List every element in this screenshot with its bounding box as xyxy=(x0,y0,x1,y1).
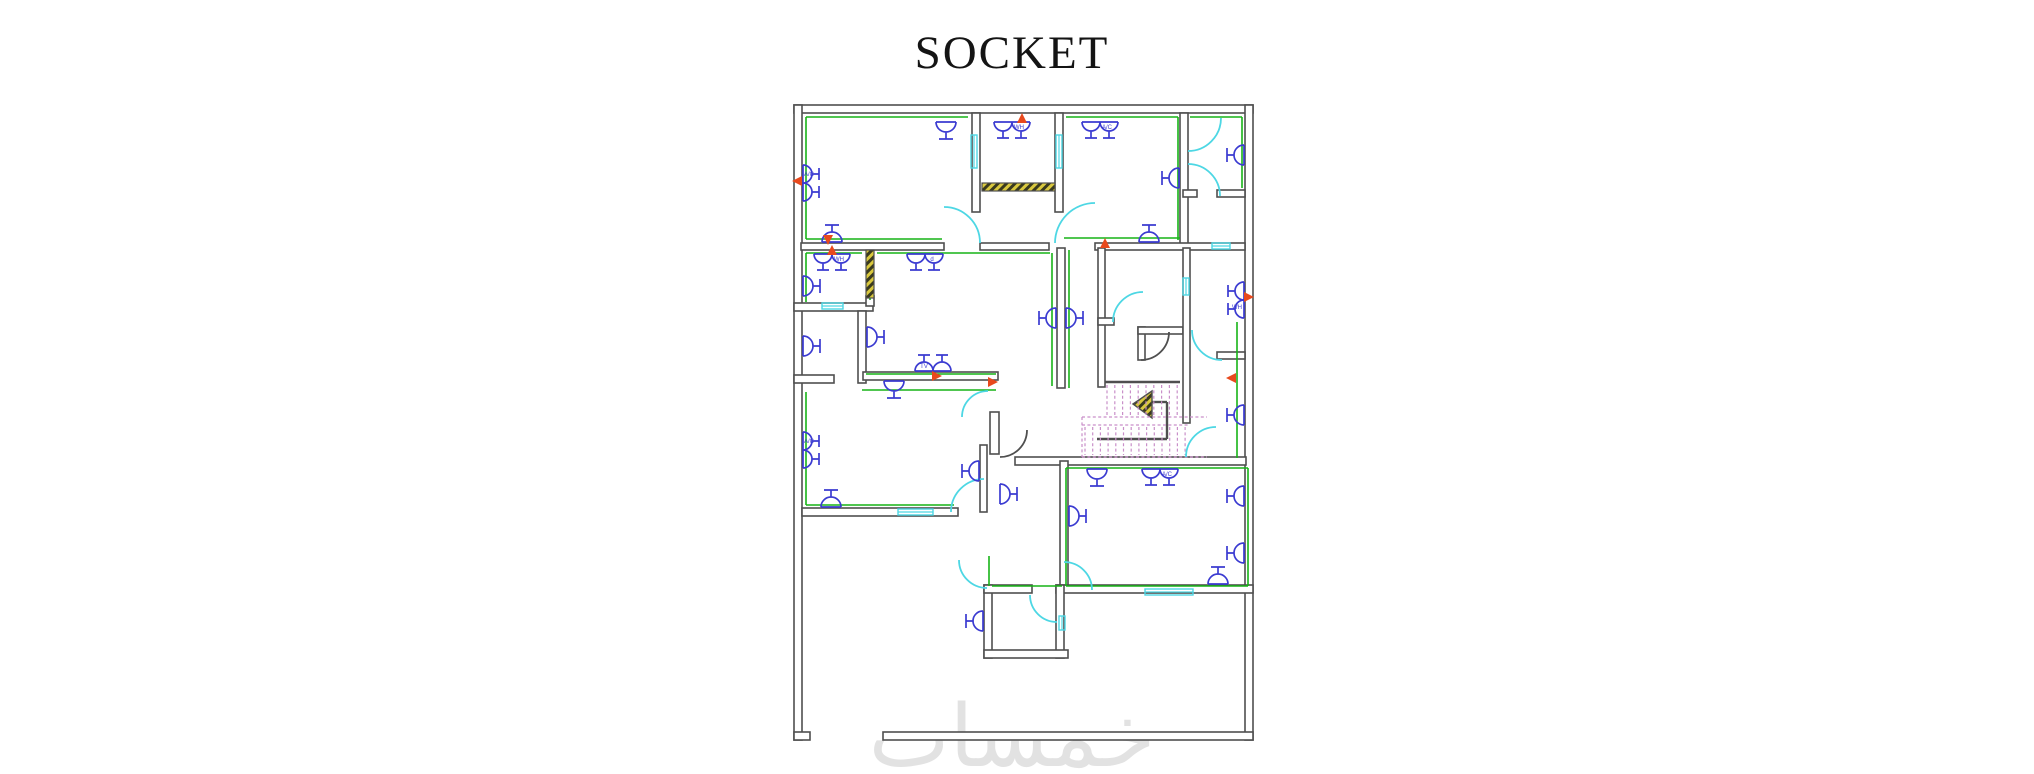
socket-symbol xyxy=(1087,469,1107,486)
socket-glyph xyxy=(1139,225,1159,242)
wall xyxy=(1217,190,1245,197)
floorplan-svg: A/CWHA/CWHdTVA/CA/CWH xyxy=(0,0,2034,774)
wall xyxy=(984,650,1068,658)
socket-symbol xyxy=(966,611,983,631)
wall xyxy=(1015,457,1246,465)
socket-glyph xyxy=(1227,543,1244,563)
wall xyxy=(1180,113,1188,247)
stair-direction-arrow xyxy=(1133,391,1152,418)
wall xyxy=(972,113,980,212)
door-arc xyxy=(1113,292,1143,322)
socket-symbol xyxy=(867,327,884,347)
socket-symbol xyxy=(1227,486,1244,506)
socket-symbol xyxy=(936,122,956,139)
wall xyxy=(1060,461,1068,592)
wall xyxy=(794,105,802,740)
socket-symbol xyxy=(1039,308,1056,328)
socket-label: TV xyxy=(920,364,928,370)
wall xyxy=(801,243,944,250)
wall xyxy=(802,508,958,516)
socket-glyph xyxy=(1162,168,1179,188)
door-arc xyxy=(951,479,984,512)
socket-symbol xyxy=(1227,405,1244,425)
floorplan-canvas: خمسات A/CWHA/CWHdTVA/CA/CWH SOCKET xyxy=(0,0,2034,774)
socket-symbol xyxy=(1142,469,1178,485)
wall xyxy=(990,412,999,454)
socket-symbol xyxy=(1208,567,1228,584)
wall xyxy=(1138,327,1183,334)
hatch-bar xyxy=(982,183,1055,191)
wall xyxy=(980,243,1049,250)
socket-glyph xyxy=(936,122,956,139)
wall xyxy=(1183,248,1190,423)
wall xyxy=(1098,318,1114,325)
socket-symbol xyxy=(1228,282,1244,318)
socket-glyph xyxy=(803,336,820,356)
socket-glyph xyxy=(1069,506,1086,526)
socket-glyph xyxy=(1000,484,1017,504)
socket-glyph xyxy=(966,611,983,631)
socket-symbol xyxy=(1082,122,1118,138)
socket-glyph xyxy=(1087,469,1107,486)
socket-symbol xyxy=(907,254,943,270)
hatch-bar xyxy=(866,250,874,298)
socket-glyph xyxy=(1228,282,1244,318)
socket-symbol xyxy=(1162,168,1179,188)
door-arc xyxy=(1030,595,1057,622)
socket-glyph xyxy=(1142,469,1178,485)
wall xyxy=(1217,352,1245,359)
socket-glyph xyxy=(867,327,884,347)
door-arc xyxy=(1188,118,1221,151)
socket-glyph xyxy=(907,254,943,270)
socket-label: WH xyxy=(1232,305,1242,311)
socket-label: WH xyxy=(834,257,844,263)
socket-glyph xyxy=(962,461,979,481)
walls-layer xyxy=(794,105,1253,740)
socket-symbol xyxy=(814,254,850,270)
socket-symbol xyxy=(803,336,820,356)
door-arc xyxy=(962,391,988,417)
socket-glyph xyxy=(814,254,850,270)
wall xyxy=(1056,585,1064,658)
wall xyxy=(1183,190,1197,197)
socket-glyph xyxy=(1039,308,1056,328)
socket-symbol xyxy=(1000,484,1017,504)
socket-label: A/C xyxy=(804,172,815,178)
wall xyxy=(794,732,810,740)
wall xyxy=(794,105,1253,113)
circuit-marker xyxy=(1226,373,1236,383)
socket-glyph xyxy=(1208,567,1228,584)
door-arc xyxy=(959,560,987,588)
wall xyxy=(1057,248,1065,388)
wall xyxy=(1245,105,1253,740)
socket-symbol xyxy=(994,122,1030,138)
circuit-marker xyxy=(1017,113,1027,123)
socket-label: WH xyxy=(1014,125,1024,131)
wall xyxy=(984,585,992,658)
wall xyxy=(794,303,873,311)
socket-label: A/C xyxy=(1102,125,1113,131)
socket-glyph xyxy=(1227,486,1244,506)
socket-symbol xyxy=(1069,506,1086,526)
socket-symbol xyxy=(1227,543,1244,563)
socket-label: A/C xyxy=(1162,472,1173,478)
socket-glyph xyxy=(994,122,1030,138)
socket-glyph xyxy=(1227,405,1244,425)
socket-label: A/C xyxy=(804,439,815,445)
wall xyxy=(794,375,834,383)
door-arc xyxy=(1186,427,1216,457)
socket-symbol xyxy=(1139,225,1159,242)
wall xyxy=(883,732,1253,740)
socket-glyph xyxy=(1082,122,1118,138)
socket-symbol xyxy=(962,461,979,481)
door-arc xyxy=(1000,430,1027,457)
socket-label: d xyxy=(930,257,933,263)
